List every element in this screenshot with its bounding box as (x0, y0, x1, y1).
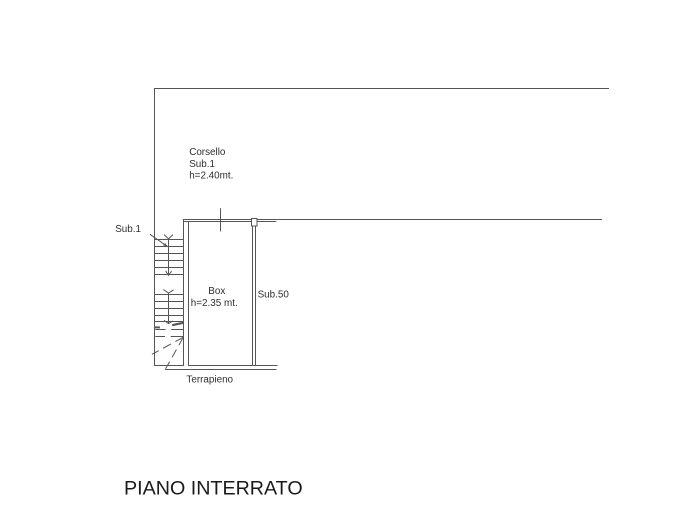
svg-text:Corsello: Corsello (189, 147, 226, 158)
svg-text:Sub.1: Sub.1 (115, 224, 141, 235)
svg-text:PIANO INTERRATO: PIANO INTERRATO (124, 477, 303, 499)
svg-text:h=2.40mt.: h=2.40mt. (189, 171, 233, 182)
svg-text:h=2.35 mt.: h=2.35 mt. (191, 298, 238, 309)
svg-text:Sub.50: Sub.50 (258, 289, 290, 300)
svg-text:Sub.1: Sub.1 (189, 159, 215, 170)
svg-text:Box: Box (208, 286, 225, 297)
svg-text:Terrapieno: Terrapieno (186, 375, 233, 386)
